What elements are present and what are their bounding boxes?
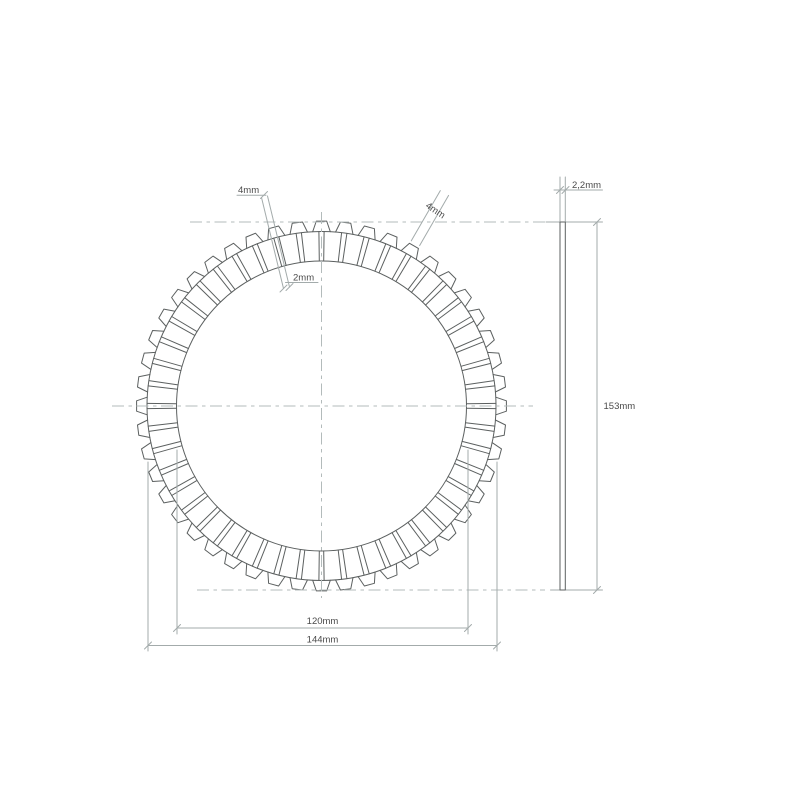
gear-tooth [149,331,164,348]
pad-groove-line [456,459,483,470]
pad-groove-line [375,244,386,271]
pad-groove-line [149,381,178,385]
gear-tooth [225,243,242,259]
gear-tooth [439,523,456,540]
pad-groove-line [149,427,178,431]
pad-groove-line [466,386,495,389]
pad-groove-line [148,386,177,389]
overall-height-label: 153mm [604,401,636,412]
pad-groove-line [257,541,268,568]
gear-tooth [246,233,263,248]
gear-tooth [439,272,456,289]
plate-side-profile [560,222,565,590]
friction-ring-outer-circle [147,232,496,581]
gear-tooth [187,272,204,289]
pad-groove-line [161,464,188,476]
pad-groove-line [159,459,186,470]
gear-tooth [149,465,164,482]
pad-groove-line [338,233,341,262]
pad-groove-line [338,550,341,579]
gear-tooth [225,553,242,569]
gear-tooth [380,233,397,248]
gear-tooth [468,309,484,326]
gear-tooth [468,486,484,503]
pad-groove-line [343,550,347,579]
gear-tooth [479,465,494,482]
pad-groove-line [466,423,495,426]
pad-groove-line [379,246,391,273]
pad-groove-line [465,381,494,385]
pad-groove-line [161,337,188,349]
pad-groove-line [296,550,300,579]
gear-tooth [159,486,175,503]
groove-width-label: 2mm [293,273,314,284]
gear-tooth [401,243,418,259]
pad-groove-line [159,342,186,353]
gear-tooth [479,331,494,348]
groove-extension-line [268,196,290,287]
pad-groove-line [455,337,482,349]
outer-diameter-label: 144mm [307,635,339,646]
gear-tooth [380,564,397,579]
technical-drawing-canvas: 4mm 4mm 2mm 2,2mm 153mm 120mm 144mm [0,0,800,800]
inner-diameter-label: 120mm [307,616,339,627]
pad-groove-line [252,246,264,273]
pad-groove-line [456,342,483,353]
pad-groove-line [296,233,300,262]
pad-groove-line [252,539,264,566]
pad-groove-line [379,539,391,566]
pad-groove-line [375,541,386,568]
dimension-labels: 4mm 4mm 2mm 2,2mm 153mm 120mm 144mm [238,180,635,646]
gear-tooth [246,564,263,579]
pad-groove-line [465,427,494,431]
side-view [546,177,603,594]
pad-groove-line [257,244,268,271]
tooth-width-top-label: 4mm [238,185,259,196]
thickness-label: 2,2mm [572,180,601,191]
pad-groove-line [148,423,177,426]
gear-tooth [159,309,175,326]
tooth-callouts [237,191,449,292]
pad-groove-line [301,233,304,262]
pad-groove-line [343,233,347,262]
gear-tooth [401,553,418,569]
pad-groove-line [301,550,304,579]
gear-tooth [187,523,204,540]
